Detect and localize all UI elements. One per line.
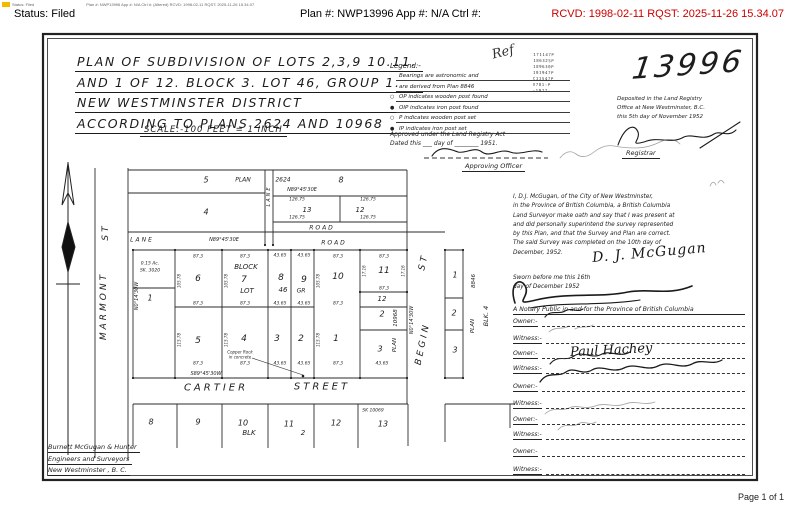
plan-title-line: NEW WESTMINSTER DISTRICT	[75, 95, 423, 113]
owner-witness-row: Owner:-Paul Hachey	[513, 346, 745, 359]
owner-witness-section: Owner:-Witness:-Owner:-Paul HacheyWitnes…	[513, 0, 745, 507]
legend-text: Bearings are astronomic and	[399, 73, 479, 79]
legend-text: OP indicates wooden post found	[399, 94, 488, 100]
form-label: Owner:-	[513, 448, 538, 457]
owner-witness-row: Owner:-	[513, 379, 745, 392]
form-line	[546, 462, 745, 475]
approval-line2: Dated this ___ day of ________ 1951.	[390, 139, 505, 148]
scale-note: SCALE:-100 FEET = 1 INCH	[140, 125, 287, 137]
owner-witness-row: Witness:-	[513, 396, 745, 409]
plan-title-line: AND 1 OF 12. BLOCK 3. LOT 46, GROUP 1.	[75, 75, 423, 93]
legend-symbol-icon: ●	[390, 105, 396, 111]
owner-witness-row: Owner:-	[513, 444, 745, 457]
owner-witness-row: Witness:-	[513, 361, 745, 374]
owner-witness-row: Witness:-	[513, 427, 745, 440]
form-line	[542, 379, 745, 392]
handwritten-name: Paul Hachey	[569, 341, 652, 360]
legend-text: are derived from Plan 8846	[399, 84, 474, 90]
parcel-lines	[95, 168, 515, 460]
firm-line: New Westminster , B. C.	[48, 466, 130, 476]
page-indicator: Page 1 of 1	[738, 492, 784, 502]
form-label: Witness:-	[513, 400, 542, 409]
form-line	[546, 427, 745, 440]
plan-title-line: PLAN OF SUBDIVISION OF LOTS 2,3,9 10.11.	[75, 54, 423, 72]
form-line	[542, 444, 745, 457]
scanned-plan-viewer: { "header": { "print_line_left": "Status…	[0, 0, 800, 507]
form-label: Owner:-	[513, 383, 538, 392]
legend-symbol-icon: ○	[390, 94, 396, 100]
legend-text: OIP indicates iron post found	[399, 105, 478, 111]
form-label: Owner:-	[513, 318, 538, 327]
form-line: Paul Hachey	[542, 346, 745, 359]
form-label: Witness:-	[513, 431, 542, 440]
approval-block: Approved under the Land Registry Act Dat…	[390, 130, 505, 149]
owner-witness-row: Owner:-	[513, 314, 745, 327]
form-line	[546, 396, 745, 409]
form-label: Owner:-	[513, 350, 538, 359]
form-label: Witness:-	[513, 365, 542, 374]
approval-line1: Approved under the Land Registry Act	[390, 130, 505, 139]
plan-title-block: PLAN OF SUBDIVISION OF LOTS 2,3,9 10.11.…	[75, 54, 423, 136]
survey-post-markers	[132, 244, 464, 379]
north-arrow-icon	[56, 162, 80, 455]
form-label: Owner:-	[513, 416, 538, 425]
owner-witness-row: Witness:-	[513, 462, 745, 475]
form-label: Witness:-	[513, 466, 542, 475]
firm-line: Burnett McGugan & Hunter	[48, 443, 140, 453]
surveyor-firm-block: Burnett McGugan & HunterEngineers and Su…	[48, 443, 140, 478]
form-line	[542, 314, 745, 327]
legend-text: P indicates wooden post set	[399, 115, 476, 121]
form-label: Witness:-	[513, 335, 542, 344]
firm-line: Engineers and Surveyors	[48, 455, 132, 465]
legend-symbol-icon: ○	[390, 115, 396, 121]
owner-witness-row: Owner:-	[513, 412, 745, 425]
form-line	[546, 361, 745, 374]
form-line	[542, 412, 745, 425]
